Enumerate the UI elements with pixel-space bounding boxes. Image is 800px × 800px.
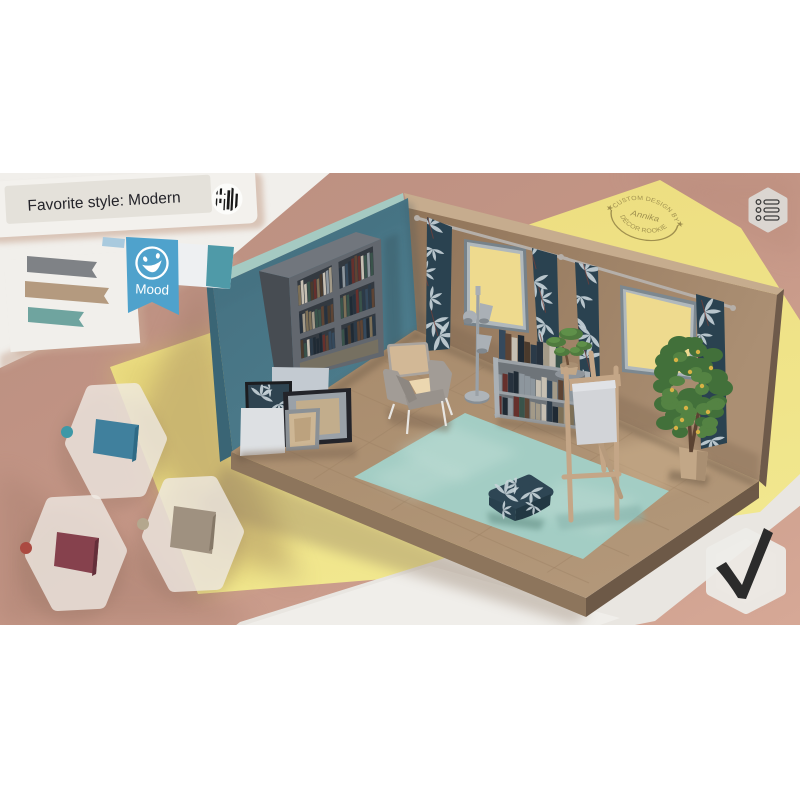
svg-text:Mood: Mood xyxy=(135,281,169,297)
